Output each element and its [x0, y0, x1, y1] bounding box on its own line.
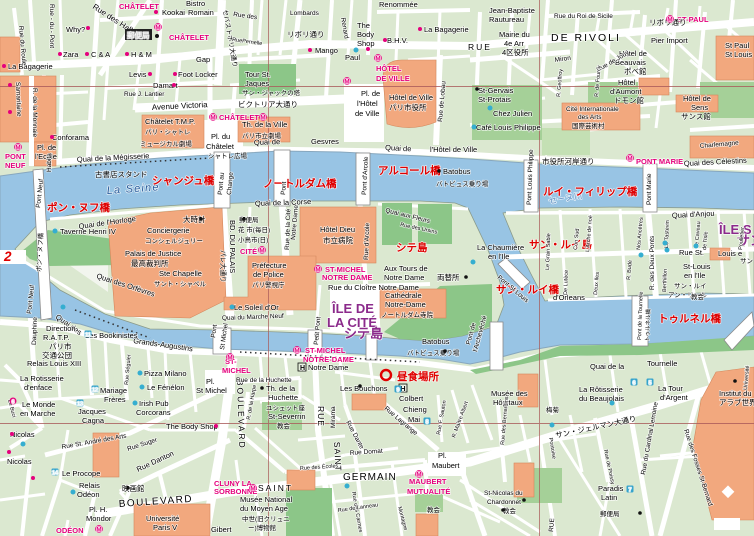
svg-text:中世(旧クリュニ: 中世(旧クリュニ — [242, 514, 290, 523]
svg-text:教会: 教会 — [277, 421, 291, 430]
svg-text:St-Severrin: St-Severrin — [268, 412, 306, 421]
svg-text:St-Gervais: St-Gervais — [478, 86, 514, 95]
svg-text:Corcorans: Corcorans — [136, 408, 171, 417]
svg-text:H: H — [300, 365, 305, 372]
svg-text:Pier Import: Pier Import — [651, 36, 689, 45]
svg-text:アラブ世界: アラブ世界 — [719, 397, 754, 407]
svg-text:The Body Shop: The Body Shop — [166, 422, 218, 431]
svg-text:Taverne Henri IV: Taverne Henri IV — [60, 227, 116, 236]
svg-text:Pl. de: Pl. de — [361, 89, 380, 98]
svg-text:M: M — [211, 116, 216, 122]
svg-text:Dauphine: Dauphine — [31, 317, 39, 345]
svg-text:ユシェット座: ユシェット座 — [266, 403, 306, 412]
svg-text:St-Protais: St-Protais — [478, 95, 511, 104]
svg-text:Notre Dame: Notre Dame — [308, 363, 348, 372]
svg-text:CITÉ: CITÉ — [240, 247, 257, 256]
svg-text:La Tour: La Tour — [658, 384, 683, 393]
svg-text:ポベ館: ポベ館 — [624, 66, 647, 76]
svg-text:Châtelet T.M.P.: Châtelet T.M.P. — [145, 117, 195, 126]
svg-text:R.A.T.P.: R.A.T.P. — [43, 333, 70, 342]
svg-text:Le Soleil d'Or: Le Soleil d'Or — [234, 303, 279, 312]
svg-text:du Beaujolais: du Beaujolais — [579, 394, 624, 403]
svg-text:Rue - du - Pont: Rue - du - Pont — [48, 4, 55, 48]
svg-text:Pl. de: Pl. de — [37, 143, 56, 152]
svg-text:シテ島: シテ島 — [344, 326, 383, 341]
svg-text:ー)博物館: ー)博物館 — [248, 523, 277, 532]
svg-text:M: M — [376, 57, 381, 63]
svg-text:Romain: Romain — [188, 8, 214, 17]
svg-text:2: 2 — [3, 249, 12, 264]
svg-text:en Marche: en Marche — [20, 409, 55, 418]
svg-text:Université: Université — [146, 514, 179, 523]
svg-text:Ste Chapelle: Ste Chapelle — [159, 269, 202, 278]
svg-text:Levis: Levis — [129, 70, 147, 79]
svg-text:Aux Tours de: Aux Tours de — [384, 264, 428, 273]
svg-text:Musée National: Musée National — [240, 495, 292, 504]
svg-text:パリ市: パリ市 — [49, 341, 72, 351]
svg-text:Paul: Paul — [345, 53, 360, 62]
svg-text:Mai: Mai — [408, 415, 420, 424]
svg-text:Zara: Zara — [63, 50, 79, 59]
svg-text:Samaritaine: Samaritaine — [14, 82, 22, 117]
svg-text:Kookai: Kookai — [162, 8, 185, 17]
svg-text:Relais: Relais — [79, 481, 100, 490]
svg-text:de Ville: de Ville — [355, 109, 379, 118]
svg-text:des Arts: des Arts — [578, 114, 602, 121]
svg-text:パレ大通り: パレ大通り — [219, 250, 228, 283]
svg-text:郵便局: 郵便局 — [239, 215, 259, 224]
svg-text:11: 11 — [85, 333, 91, 339]
svg-text:Berthillon: Berthillon — [662, 269, 669, 292]
svg-text:Les Bouchons: Les Bouchons — [340, 384, 388, 393]
svg-text:梅菊: 梅菊 — [546, 405, 560, 414]
svg-text:Notre-Dame: Notre-Dame — [385, 300, 426, 309]
svg-text:パリ・シャトレ: パリ・シャトレ — [145, 128, 191, 136]
svg-text:4e Arr: 4e Arr — [504, 39, 525, 48]
svg-text:バトビュス乗り場: バトビュス乗り場 — [407, 348, 460, 357]
svg-text:ÎLE DE: ÎLE DE — [331, 301, 374, 316]
svg-text:Mairie du: Mairie du — [499, 30, 530, 39]
svg-text:Mirama: Mirama — [330, 406, 337, 428]
svg-text:Paradis: Paradis — [598, 484, 624, 493]
svg-text:Mango: Mango — [315, 46, 338, 55]
svg-text:Irish Pub: Irish Pub — [139, 399, 169, 408]
svg-text:シテ島: シテ島 — [396, 241, 428, 254]
svg-text:Direction: Direction — [46, 324, 76, 333]
svg-text:Lombards: Lombards — [290, 10, 320, 17]
svg-text:ノートルダム寺院: ノートルダム寺院 — [381, 310, 434, 319]
svg-text:13: 13 — [77, 402, 83, 408]
svg-text:Gibert: Gibert — [211, 525, 232, 534]
svg-text:バトビュス乗り場: バトビュス乗り場 — [436, 179, 489, 188]
svg-text:NOTRE DAME: NOTRE DAME — [322, 273, 372, 282]
svg-text:Pont: Pont — [280, 181, 288, 195]
svg-text:昼食場所: 昼食場所 — [397, 370, 439, 383]
svg-text:Cagna: Cagna — [82, 416, 105, 425]
svg-text:Hôtel de Ville: Hôtel de Ville — [389, 93, 433, 102]
svg-text:ST-MICHEL: ST-MICHEL — [305, 346, 346, 355]
svg-text:パリ市役所: パリ市役所 — [389, 102, 427, 112]
svg-text:The: The — [357, 21, 370, 30]
svg-text:Tour St.: Tour St. — [245, 70, 271, 79]
svg-text:Préfecture: Préfecture — [252, 261, 287, 270]
svg-text:Les Bookinistes: Les Bookinistes — [85, 331, 138, 340]
svg-text:RUE: RUE — [548, 517, 556, 532]
svg-text:Pizza Milano: Pizza Milano — [144, 369, 187, 378]
svg-text:du Moyen Age: du Moyen Age — [240, 504, 288, 513]
svg-text:M: M — [628, 157, 633, 163]
svg-text:Frères: Frères — [104, 395, 126, 404]
svg-text:Batobus: Batobus — [443, 167, 471, 176]
svg-text:Habita: Habita — [46, 153, 53, 172]
svg-text:両替所: 両替所 — [437, 272, 460, 282]
svg-text:SAINT: SAINT — [258, 483, 293, 493]
svg-text:Musée des: Musée des — [491, 389, 528, 398]
svg-text:サン・ジャックの塔: サン・ジャックの塔 — [242, 88, 301, 97]
svg-text:シャンジュ橋: シャンジュ橋 — [152, 174, 215, 187]
svg-text:Rue d'Arcole: Rue d'Arcole — [363, 222, 371, 260]
svg-text:小鳥市(日): 小鳥市(日) — [238, 235, 268, 244]
svg-text:H & M: H & M — [131, 50, 152, 59]
svg-text:Sens: Sens — [691, 103, 708, 112]
svg-text:l'Hôtel: l'Hôtel — [357, 99, 378, 108]
svg-text:Chieng: Chieng — [403, 405, 427, 414]
svg-text:DE VILLE: DE VILLE — [376, 74, 410, 83]
svg-text:DE RIVOLI: DE RIVOLI — [551, 32, 621, 44]
svg-text:Colbert: Colbert — [399, 394, 424, 403]
svg-text:市立病院: 市立病院 — [323, 235, 353, 245]
svg-text:La Chaumière: La Chaumière — [477, 243, 524, 252]
svg-text:Notre Dame: Notre Dame — [384, 273, 424, 282]
svg-text:MUTUALITÉ: MUTUALITÉ — [407, 487, 450, 496]
svg-text:ミュージカル劇場: ミュージカル劇場 — [140, 139, 192, 148]
svg-text:M: M — [156, 26, 161, 32]
svg-text:NEUF: NEUF — [5, 161, 26, 170]
svg-text:4区役所: 4区役所 — [502, 47, 529, 57]
svg-text:M: M — [260, 249, 265, 255]
svg-text:郵便局: 郵便局 — [127, 30, 150, 40]
svg-text:12: 12 — [92, 388, 98, 394]
svg-text:Body: Body — [357, 30, 374, 39]
svg-text:La Rotisserie: La Rotisserie — [20, 374, 64, 383]
svg-text:Chardonnet: Chardonnet — [487, 499, 521, 506]
svg-text:最高裁判所: 最高裁判所 — [131, 258, 169, 268]
svg-text:Mariage: Mariage — [100, 386, 127, 395]
svg-text:d'Argent: d'Argent — [660, 393, 689, 402]
svg-text:Rautureau: Rautureau — [489, 15, 524, 24]
svg-text:Tournelle: Tournelle — [647, 359, 677, 368]
svg-text:M: M — [316, 268, 321, 274]
svg-text:MAUBERT: MAUBERT — [409, 477, 447, 486]
svg-text:シャトレ広場: シャトレ広場 — [208, 151, 248, 160]
svg-text:La Bagagerie: La Bagagerie — [424, 25, 469, 34]
svg-text:ルイ・フィリップ橋: ルイ・フィリップ橋 — [543, 185, 638, 198]
svg-text:Gap: Gap — [196, 55, 210, 64]
svg-text:Batobus: Batobus — [422, 337, 450, 346]
svg-text:RUE: RUE — [316, 406, 326, 427]
svg-text:Relais Louis XIII: Relais Louis XIII — [27, 359, 81, 368]
svg-text:パリ警視庁: パリ警視庁 — [252, 280, 285, 289]
svg-text:M: M — [97, 528, 102, 534]
svg-text:M: M — [668, 18, 673, 24]
svg-text:コンシェルジュリー: コンシェルジュリー — [145, 237, 203, 245]
svg-text:Conforama: Conforama — [52, 133, 90, 142]
svg-text:教会: 教会 — [503, 506, 517, 515]
svg-text:R. de la Monnaie: R. de la Monnaie — [31, 88, 38, 138]
svg-text:Pont Marie: Pont Marie — [646, 173, 653, 205]
svg-text:Jaques: Jaques — [245, 79, 269, 88]
svg-text:国際芸術村: 国際芸術村 — [572, 121, 605, 130]
svg-text:Cathédrale: Cathédrale — [385, 291, 422, 300]
svg-text:サン・ルイ島: サン・ルイ島 — [529, 238, 592, 251]
svg-text:Pl. du: Pl. du — [211, 132, 230, 141]
svg-text:PONT: PONT — [5, 152, 26, 161]
svg-text:Hôtel de: Hôtel de — [683, 94, 711, 103]
svg-text:7: 7 — [628, 488, 631, 494]
svg-text:St-Nicolas du: St-Nicolas du — [484, 490, 523, 497]
svg-text:6: 6 — [11, 400, 14, 406]
svg-text:de Police: de Police — [253, 270, 284, 279]
svg-text:l'Hôtel de Ville: l'Hôtel de Ville — [430, 145, 477, 154]
svg-text:郵便局: 郵便局 — [600, 509, 620, 518]
svg-text:HÔTEL: HÔTEL — [376, 64, 402, 73]
svg-text:C & A: C & A — [91, 50, 110, 59]
svg-text:Rue de la Huchette: Rue de la Huchette — [236, 377, 292, 384]
svg-text:Quai de: Quai de — [385, 143, 412, 153]
svg-text:8: 8 — [425, 420, 428, 426]
svg-text:花 市(毎日): 花 市(毎日) — [238, 225, 270, 234]
svg-text:Rue J. Lantier: Rue J. Lantier — [124, 91, 165, 98]
svg-text:M: M — [261, 116, 266, 122]
svg-text:Le Monde: Le Monde — [22, 400, 55, 409]
svg-text:ポン・ヌフ橋: ポン・ヌフ橋 — [47, 201, 110, 214]
svg-text:Foot Locker: Foot Locker — [178, 70, 218, 79]
svg-text:Quai de la: Quai de la — [590, 362, 625, 371]
svg-text:市役所河岸通り: 市役所河岸通り — [542, 156, 595, 166]
svg-text:ODÉON: ODÉON — [56, 526, 84, 535]
svg-text:Odéon: Odéon — [77, 490, 100, 499]
svg-text:Renommée: Renommée — [379, 0, 418, 9]
svg-text:M: M — [16, 146, 21, 152]
svg-text:M: M — [251, 487, 256, 493]
svg-text:Rue St.: Rue St. — [679, 248, 704, 257]
svg-text:Shop: Shop — [357, 39, 375, 48]
svg-text:RUE: RUE — [468, 42, 492, 52]
svg-text:Nicolas: Nicolas — [7, 457, 32, 466]
svg-text:サン・ルイ・ア: サン・ルイ・ア — [740, 257, 754, 265]
svg-text:Th. de la: Th. de la — [266, 384, 296, 393]
svg-text:Pl. H.: Pl. H. — [89, 505, 107, 514]
svg-text:Le Procope: Le Procope — [62, 469, 100, 478]
svg-text:サンス館: サンス館 — [681, 111, 711, 121]
svg-text:en l'Ile: en l'Ile — [488, 252, 509, 261]
svg-text:M: M — [417, 473, 422, 479]
svg-text:St Michel: St Michel — [196, 386, 227, 395]
svg-text:R. des Deux Ponts: R. des Deux Ponts — [649, 235, 656, 290]
svg-text:Cité Internationale: Cité Internationale — [566, 106, 619, 113]
svg-text:ノートルダム橋: ノートルダム橋 — [263, 177, 337, 190]
svg-text:Hôtel: Hôtel — [618, 78, 636, 87]
svg-text:Latin: Latin — [601, 493, 617, 502]
svg-text:教会: 教会 — [691, 292, 705, 301]
svg-text:Le Grain Sable: Le Grain Sable — [545, 233, 552, 270]
svg-text:St Louis: St Louis — [725, 50, 752, 59]
svg-text:Pl.: Pl. — [438, 451, 447, 460]
svg-text:ビクトリア大通り: ビクトリア大通り — [238, 99, 298, 109]
svg-text:9: 9 — [396, 388, 399, 394]
svg-text:Huchette: Huchette — [268, 393, 298, 402]
svg-text:CHÂTELET: CHÂTELET — [169, 33, 209, 42]
svg-text:Maubert: Maubert — [432, 461, 460, 470]
svg-text:St Paul: St Paul — [725, 41, 750, 50]
svg-text:MICHEL: MICHEL — [222, 366, 251, 375]
svg-text:M: M — [295, 349, 300, 355]
svg-text:De Lutèce: De Lutèce — [563, 270, 570, 295]
svg-text:BD. DU PALAIS: BD. DU PALAIS — [228, 220, 237, 273]
svg-text:教会: 教会 — [427, 505, 441, 514]
svg-text:トゥルネル橋: トゥルネル橋 — [658, 312, 721, 325]
svg-text:Chez Julien: Chez Julien — [493, 109, 532, 118]
svg-text:古書店スタンド: 古書店スタンド — [95, 169, 148, 179]
svg-text:Quai de: Quai de — [254, 137, 281, 147]
svg-text:ドモン館: ドモン館 — [614, 95, 644, 105]
svg-text:映画館: 映画館 — [122, 483, 145, 493]
svg-text:Mondor: Mondor — [86, 514, 112, 523]
svg-text:CHÂTELET: CHÂTELET — [119, 2, 159, 11]
svg-text:Bistro: Bistro — [186, 0, 205, 8]
svg-text:リボリ通り: リボリ通り — [287, 29, 325, 39]
svg-text:サン・ルイ: サン・ルイ — [674, 282, 707, 290]
svg-text:Jean-Baptiste: Jean-Baptiste — [489, 6, 535, 15]
svg-text:Café Louis Philippe: Café Louis Philippe — [476, 123, 541, 132]
svg-text:Why?: Why? — [66, 25, 85, 34]
svg-text:Palais de Justice: Palais de Justice — [125, 249, 181, 258]
svg-text:Pl.: Pl. — [206, 377, 215, 386]
svg-text:d'Aumont: d'Aumont — [610, 87, 642, 96]
svg-text:Paris V: Paris V — [153, 523, 177, 532]
svg-text:アルコール橋: アルコール橋 — [378, 164, 441, 177]
svg-text:en l'Ile: en l'Ile — [684, 271, 705, 280]
svg-text:M: M — [228, 356, 233, 362]
svg-text:5: 5 — [648, 381, 651, 387]
svg-text:Conciergerie: Conciergerie — [147, 226, 190, 235]
svg-text:Gesvres: Gesvres — [311, 137, 339, 146]
svg-text:Châtelet: Châtelet — [206, 142, 235, 151]
svg-text:d'Orleans: d'Orleans — [553, 293, 585, 302]
svg-text:Hôtel Dieu: Hôtel Dieu — [320, 225, 355, 234]
svg-text:GERMAIN: GERMAIN — [343, 472, 397, 483]
svg-text:Jacques: Jacques — [78, 407, 106, 416]
svg-text:St-Louis: St-Louis — [683, 262, 711, 271]
svg-text:6: 6 — [632, 381, 635, 387]
svg-text:La Bagagerie: La Bagagerie — [8, 62, 53, 71]
svg-text:d'enface: d'enface — [24, 383, 52, 392]
svg-text:14: 14 — [52, 471, 59, 477]
svg-text:Le Fénélon: Le Fénélon — [147, 383, 185, 392]
svg-text:M: M — [345, 80, 350, 86]
svg-text:B.H.V.: B.H.V. — [387, 36, 408, 45]
svg-text:La Rôtisserie: La Rôtisserie — [579, 385, 623, 394]
svg-text:サント・シャペル: サント・シャペル — [154, 280, 207, 288]
svg-text:Rue du Roi de Sicile: Rue du Roi de Sicile — [554, 13, 613, 20]
svg-text:PONT MARIE: PONT MARIE — [636, 157, 683, 166]
